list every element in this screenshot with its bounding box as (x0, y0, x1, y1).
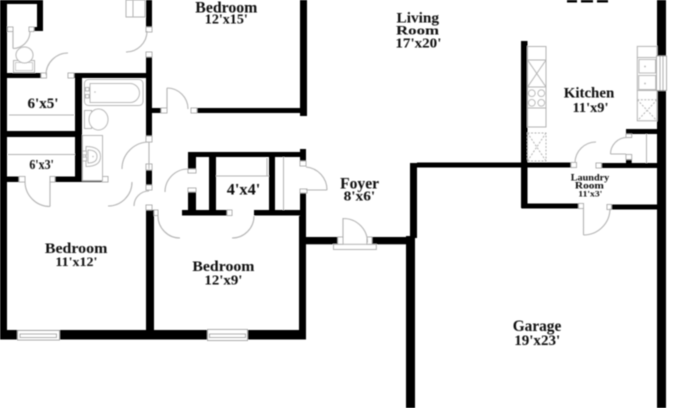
svg-text:19'x23': 19'x23' (514, 333, 560, 349)
svg-text:11'x3': 11'x3' (578, 189, 602, 198)
svg-text:11'x12': 11'x12' (55, 255, 97, 269)
svg-text:8'x6': 8'x6' (344, 190, 376, 205)
svg-text:Kitchen: Kitchen (564, 85, 615, 101)
svg-text:4'x4': 4'x4' (227, 181, 261, 198)
svg-text:12'x9': 12'x9' (204, 273, 242, 288)
svg-text:17'x20': 17'x20' (395, 37, 441, 52)
svg-text:12'x15': 12'x15' (205, 12, 248, 27)
svg-text:Room: Room (396, 23, 439, 37)
svg-text:11'x9': 11'x9' (573, 101, 609, 116)
svg-text:6'x5': 6'x5' (28, 96, 59, 112)
svg-text:6'x3': 6'x3' (29, 157, 54, 172)
